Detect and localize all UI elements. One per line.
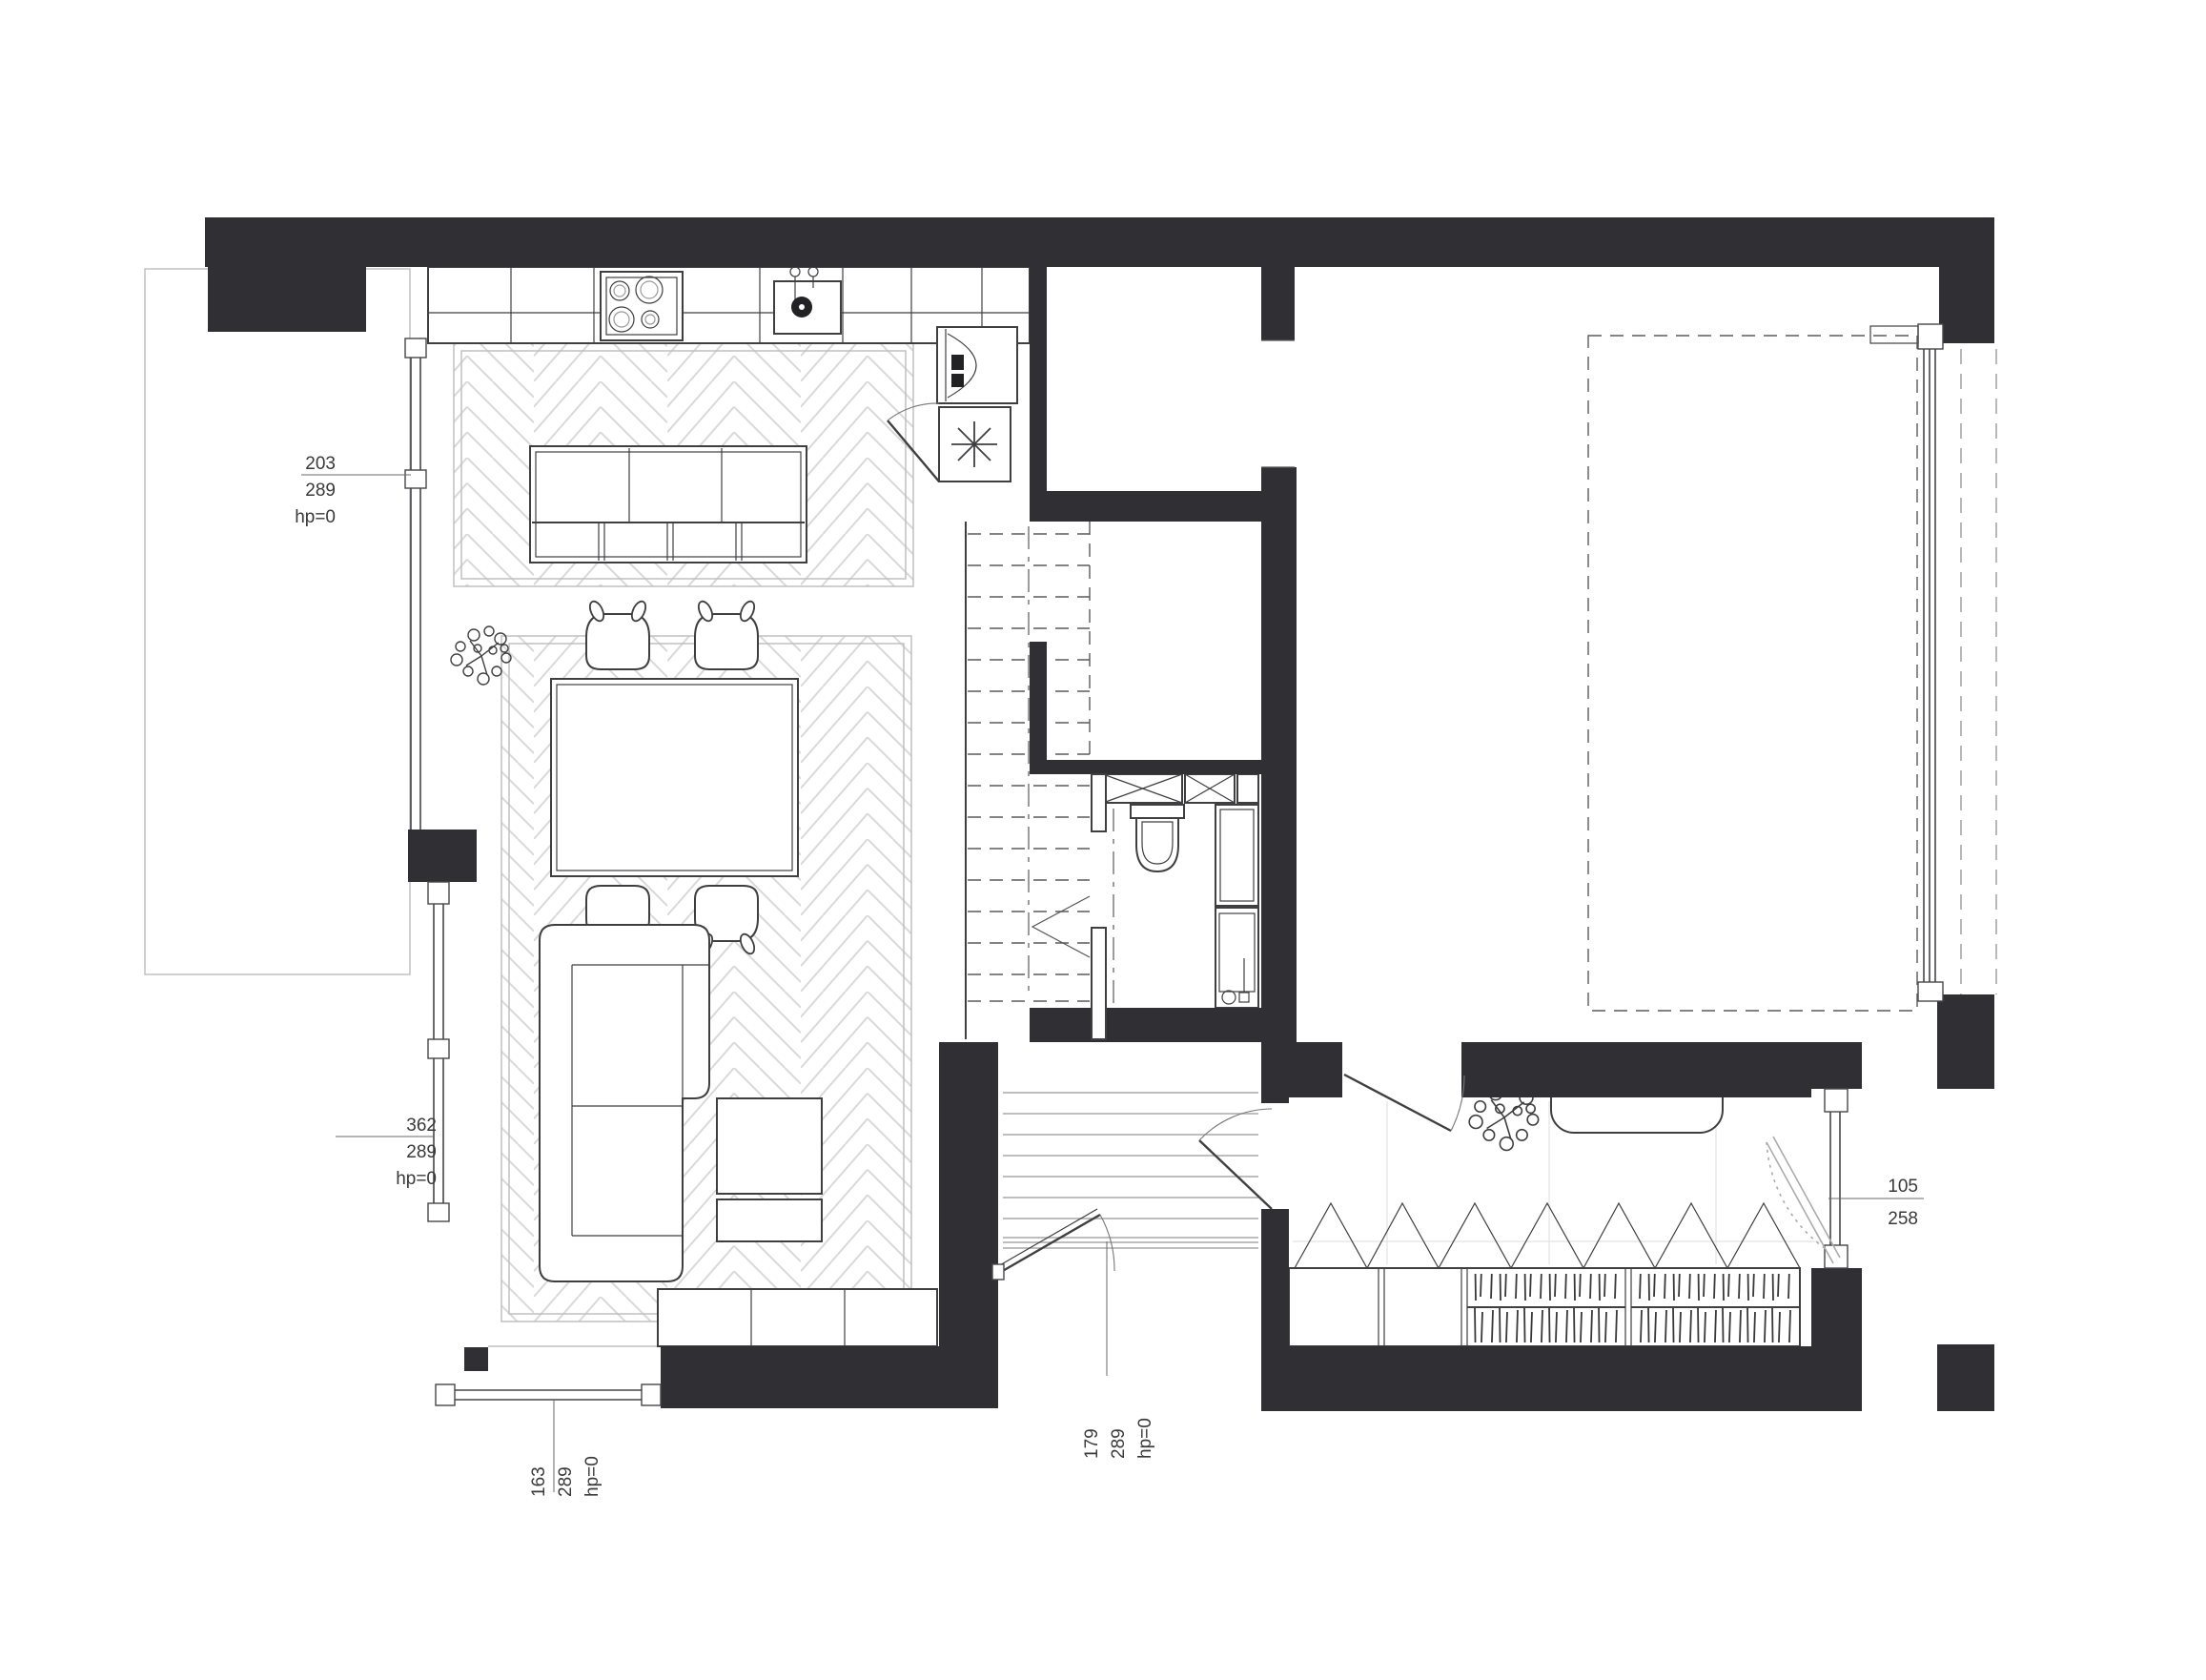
dim-text: 289 — [1109, 1428, 1129, 1459]
bathroom-partition-upper — [1092, 774, 1106, 831]
dim-text: hp=0 — [582, 1456, 603, 1497]
wall-bathroom-north — [1030, 760, 1261, 774]
wall-stair-east — [1030, 642, 1047, 760]
wall-dressing-northeast — [1811, 1042, 1862, 1089]
wall-south-dressing — [1261, 1346, 1862, 1411]
floor-plan-drawing: 203 289 hp=0 362 289 hp=0 163 289 hp=0 1… — [0, 0, 2206, 1680]
wall-kitchen-hall — [1030, 267, 1047, 522]
wall-north — [205, 217, 1994, 267]
wall-entry-west — [939, 1042, 998, 1408]
wall-southeast-block — [1937, 1344, 1994, 1411]
side-table — [717, 1199, 822, 1241]
dim-text: 289 — [305, 481, 336, 501]
dining-table — [551, 679, 798, 876]
dim-text: 105 — [1888, 1177, 1918, 1197]
bathroom-vanity-sink — [1215, 908, 1258, 1008]
coffee-table — [717, 1098, 822, 1194]
dim-text: 289 — [406, 1142, 437, 1162]
floor-plan-page: 203 289 hp=0 362 289 hp=0 163 289 hp=0 1… — [0, 0, 2206, 1680]
heater-asterisk-icon — [951, 421, 997, 467]
wall-bedroom-southeast-block — [1937, 994, 1994, 1089]
wall-bathroom-south — [1030, 1008, 1297, 1042]
tv-console — [658, 1289, 937, 1356]
wall-bedroom-northeast — [1939, 267, 1994, 343]
wall-bedroom-west — [1261, 467, 1297, 1042]
dim-text: hp=0 — [396, 1169, 437, 1189]
wall-southwest-column — [464, 1347, 488, 1371]
wall-dressing-west-lower — [1261, 1209, 1289, 1346]
wall-dressing-east-lower — [1811, 1268, 1862, 1346]
dim-text: 258 — [1888, 1209, 1918, 1229]
appliance-oven — [937, 327, 1017, 403]
bathroom-tall-cabinet — [1215, 805, 1258, 906]
cooktop — [601, 272, 683, 340]
dim-text: 362 — [406, 1116, 437, 1136]
heater-closet — [939, 407, 1011, 481]
wall-dressing-north-left — [1261, 1042, 1342, 1097]
bathroom-partition-lower — [1092, 928, 1106, 1039]
kitchen-island — [530, 446, 807, 563]
dim-text: 163 — [529, 1466, 549, 1497]
toilet — [1131, 805, 1184, 871]
dim-text: hp=0 — [1135, 1418, 1155, 1459]
dim-text: 179 — [1082, 1428, 1102, 1459]
dim-text: 203 — [305, 454, 336, 474]
wall-dressing-north-right — [1461, 1042, 1811, 1097]
bathroom-storage-cabinets — [1103, 774, 1258, 803]
wall-west-mid-block — [408, 830, 477, 882]
dim-text: hp=0 — [295, 507, 336, 527]
wall-northwest-block — [208, 267, 366, 332]
dim-text: 289 — [556, 1466, 576, 1497]
wall-bedroom-door-stub — [1261, 267, 1295, 340]
wall-hall-south — [1047, 491, 1261, 522]
